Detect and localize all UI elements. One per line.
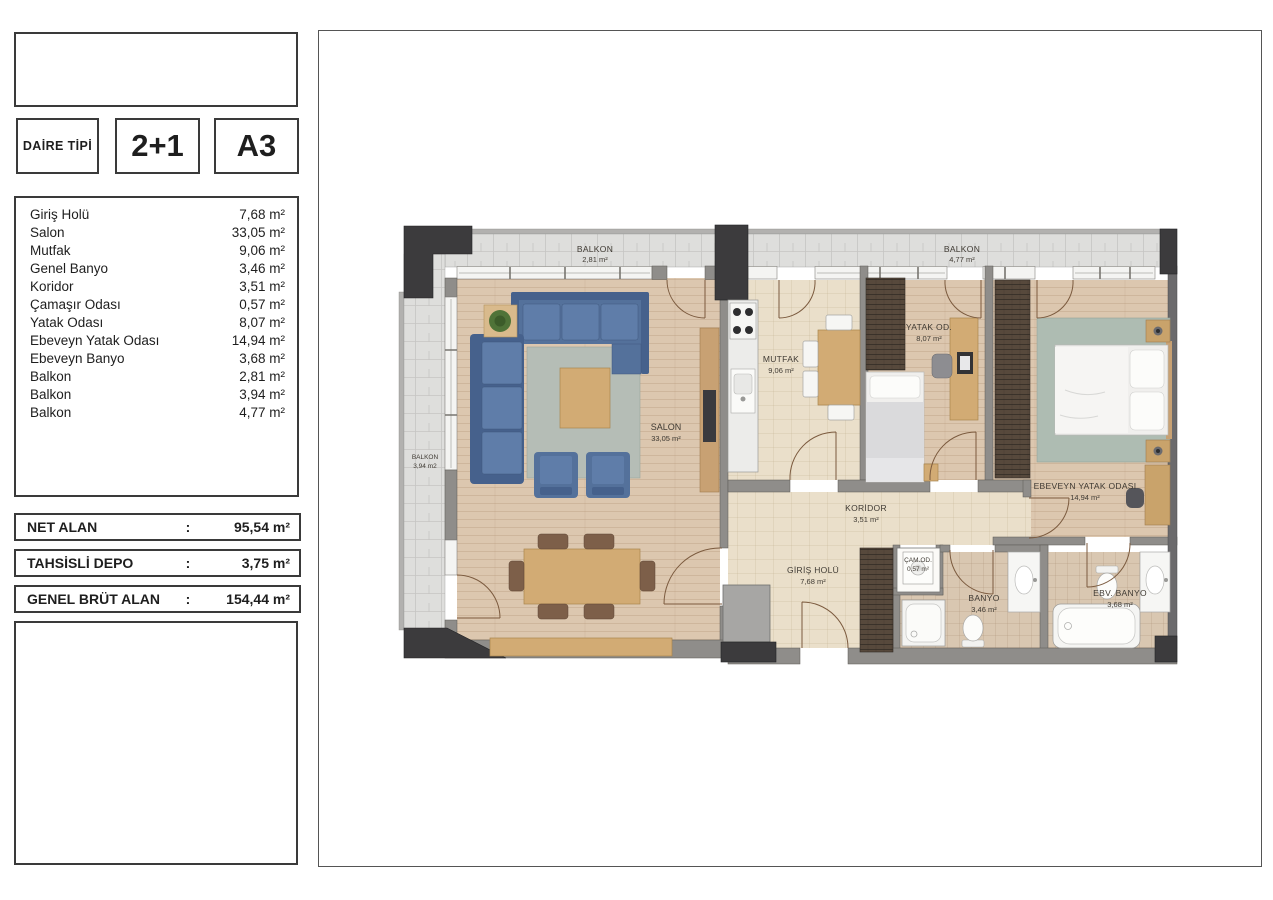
- dining-chair: [509, 561, 524, 591]
- floor-plan-frame: BALKON 2,81 m² BALKON 4,77 m² BALKON 3,9…: [318, 30, 1262, 867]
- dining-chair: [538, 604, 568, 619]
- gross-area-box: GENEL BRÜT ALAN : 154,44 m²: [14, 585, 301, 613]
- balcony-outer-wall-left: [399, 292, 404, 630]
- dining-table: [524, 549, 640, 604]
- unit-code: A3: [237, 128, 277, 164]
- dining-chair: [640, 561, 655, 591]
- salon-window-left2: [445, 540, 457, 575]
- svg-text:14,94 m²: 14,94 m²: [1070, 493, 1100, 502]
- kitchen-chair: [826, 315, 852, 330]
- entry-shaft: [723, 585, 770, 642]
- ebv-banyo-label: EBV. BANYO: [1093, 588, 1147, 598]
- tv: [703, 390, 716, 442]
- stove: [730, 303, 756, 339]
- svg-text:8,07 m²: 8,07 m²: [916, 334, 942, 343]
- balkon-top-floor: [445, 234, 1162, 267]
- svg-text:3,68 m²: 3,68 m²: [1107, 600, 1133, 609]
- banyo-label: BANYO: [968, 593, 999, 603]
- svg-text:33,05 m²: 33,05 m²: [651, 434, 681, 443]
- column-bottom-right: [1155, 636, 1177, 662]
- column-bottom-mid: [721, 642, 776, 662]
- room-list-item: Salon33,05 m²: [16, 224, 297, 242]
- mutfak-label: MUTFAK: [763, 354, 799, 364]
- ebeveyn-bottom-wall: [993, 537, 1085, 545]
- svg-text:3,94 m2: 3,94 m2: [413, 463, 437, 470]
- wardrobe: [995, 280, 1030, 478]
- svg-text:3,51 m²: 3,51 m²: [853, 515, 879, 524]
- desk-chair: [932, 354, 952, 378]
- balkon-label: BALKON: [577, 244, 613, 254]
- yatak-ebeveyn-wall: [985, 266, 993, 480]
- sofa-chaise: [612, 344, 641, 374]
- pillow: [1130, 350, 1164, 388]
- giris-holu-label: GİRİŞ HOLÜ: [787, 565, 839, 575]
- logo-box: [14, 32, 298, 107]
- net-area-box: NET ALAN : 95,54 m²: [14, 513, 301, 541]
- unit-type-label: DAİRE TİPİ: [23, 139, 92, 153]
- unit-code-box: A3: [214, 118, 299, 174]
- room-list-item: Mutfak9,06 m²: [16, 242, 297, 260]
- dining-chair: [584, 534, 614, 549]
- room-list-item: Ebeveyn Yatak Odası14,94 m²: [16, 332, 297, 350]
- sideboard: [490, 638, 672, 656]
- svg-text:2,81 m²: 2,81 m²: [582, 255, 608, 264]
- dining-chair: [538, 534, 568, 549]
- koridor-label: KORİDOR: [845, 503, 887, 513]
- room-list-item: Ebeveyn Banyo3,68 m²: [16, 350, 297, 368]
- svg-text:9,06 m²: 9,06 m²: [768, 366, 794, 375]
- floor-plan: BALKON 2,81 m² BALKON 4,77 m² BALKON 3,9…: [319, 31, 1260, 865]
- pillow: [870, 376, 920, 398]
- column-mid-top: [715, 225, 748, 300]
- ebeveyn-label: EBEVEYN YATAK ODASI: [1034, 481, 1137, 491]
- room-list: Giriş Holü7,68 m² Salon33,05 m² Mutfak9,…: [14, 196, 299, 497]
- svg-text:4,77 m²: 4,77 m²: [949, 255, 975, 264]
- hall-wardrobe: [860, 548, 893, 652]
- mutfak-window: [748, 267, 777, 280]
- salon-mutfak-wall: [720, 300, 728, 548]
- koridor-floor: [728, 492, 1031, 545]
- kitchen-table: [818, 330, 860, 405]
- koridor-top-wall: [728, 480, 790, 492]
- dining-chair: [584, 604, 614, 619]
- unit-type-label-box: DAİRE TİPİ: [16, 118, 99, 174]
- pillow: [1130, 392, 1164, 430]
- unit-type-value-box: 2+1: [115, 118, 200, 174]
- kitchen-chair: [803, 371, 818, 397]
- camasir-odasi-label: ÇAM.OD.: [904, 557, 932, 564]
- room-list-item: Balkon3,94 m²: [16, 386, 297, 404]
- room-list-item: Yatak Odası8,07 m²: [16, 314, 297, 332]
- column-top-right: [1160, 229, 1177, 274]
- dresser: [1145, 465, 1170, 525]
- room-list-item: Giriş Holü7,68 m²: [16, 206, 297, 224]
- room-list-item: Balkon2,81 m²: [16, 368, 297, 386]
- banyo-ebvbanyo-wall: [1040, 545, 1048, 657]
- room-list-item: Balkon4,77 m²: [16, 404, 297, 422]
- svg-text:0,57 m²: 0,57 m²: [907, 566, 930, 573]
- kitchen-chair: [803, 341, 818, 367]
- balkon-label: BALKON: [944, 244, 980, 254]
- svg-text:3,46 m²: 3,46 m²: [971, 605, 997, 614]
- room-list-item: Genel Banyo3,46 m²: [16, 260, 297, 278]
- room-list-item: Koridor3,51 m²: [16, 278, 297, 296]
- balkon-label: BALKON: [412, 454, 439, 461]
- room-list-item: Çamaşır Odası0,57 m²: [16, 296, 297, 314]
- yatak-odasi-label: YATAK OD.: [906, 322, 952, 332]
- salon-label: SALON: [651, 422, 682, 432]
- kitchen-chair: [828, 405, 854, 420]
- balkon-left-floor: [404, 254, 445, 630]
- toilet: [963, 615, 983, 641]
- footer-box: [14, 621, 298, 865]
- pouf: [1126, 488, 1144, 508]
- wardrobe: [866, 278, 905, 370]
- unit-type-value: 2+1: [131, 128, 184, 164]
- coffee-table: [560, 368, 610, 428]
- svg-text:7,68 m²: 7,68 m²: [800, 577, 826, 586]
- storage-area-box: TAHSİSLİ DEPO : 3,75 m²: [14, 549, 301, 577]
- balcony-outer-wall-top: [433, 229, 1170, 234]
